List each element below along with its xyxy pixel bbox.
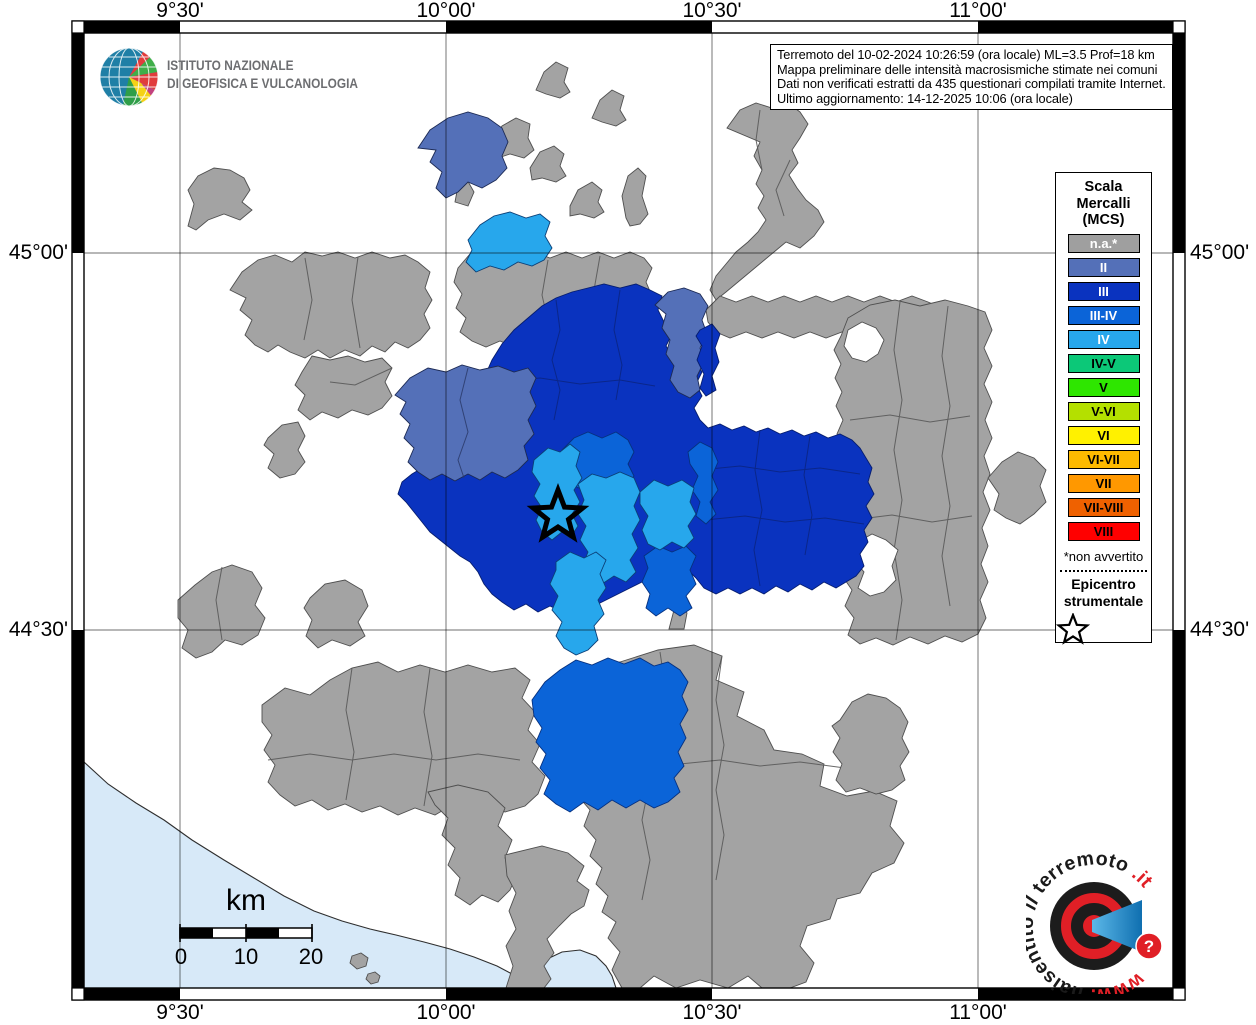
logo-text-il: il xyxy=(1026,893,1044,912)
legend-item-na: n.a.* xyxy=(1068,234,1140,253)
legend-item-ivv: IV-V xyxy=(1068,354,1140,373)
axis-tick-top-4: 11°00' xyxy=(949,0,1007,23)
axis-tick-top-3: 10°30' xyxy=(682,0,741,23)
axis-tick-bottom-1: 9°30' xyxy=(156,1001,203,1025)
axis-tick-left-1: 45°00' xyxy=(2,241,68,265)
axis-tick-top-1: 9°30' xyxy=(156,0,203,23)
legend-panel: Scala Mercalli (MCS) n.a.*IIIIIIII-IVIVI… xyxy=(1055,172,1152,643)
scale-bar-unit: km xyxy=(226,884,266,918)
axis-tick-bottom-4: 11°00' xyxy=(949,1001,1007,1025)
logo-question-mark: ? xyxy=(1144,937,1154,956)
legend-epicenter-line1: Epicentro xyxy=(1056,576,1151,593)
info-line-questionnaires: Dati non verificati estratti da 435 ques… xyxy=(777,77,1166,92)
intensity-iii-sliver xyxy=(696,324,720,396)
scale-bar-tick-20: 20 xyxy=(299,944,323,970)
logo-text-it: .it xyxy=(1128,863,1157,893)
info-line-event: Terremoto del 10-02-2024 10:26:59 (ora l… xyxy=(777,48,1166,63)
legend-item-iii: III xyxy=(1068,282,1140,301)
ingv-name-line1: ISTITUTO NAZIONALE xyxy=(167,57,358,75)
scale-bar-tick-10: 10 xyxy=(234,944,258,970)
legend-item-vii: VII xyxy=(1068,474,1140,493)
ingv-logo-text: ISTITUTO NAZIONALE DI GEOFISICA E VULCAN… xyxy=(167,57,358,92)
legend-title-line1: Scala xyxy=(1056,179,1151,196)
legend-divider xyxy=(1060,570,1147,572)
legend-items: n.a.*IIIIIIII-IVIVIV-VVV-VIVIVI-VIIVIIVI… xyxy=(1056,234,1151,541)
legend-title-line2: Mercalli xyxy=(1056,196,1151,213)
macroseismic-map-page: 9°30' 10°00' 10°30' 11°00' 9°30' 10°00' … xyxy=(0,0,1256,1024)
legend-item-vi: VI xyxy=(1068,426,1140,445)
legend-footnote: *non avvertito xyxy=(1056,549,1151,564)
legend-item-vivii: VI-VII xyxy=(1068,450,1140,469)
ingv-name-line2: DI GEOFISICA E VULCANOLOGIA xyxy=(167,75,358,93)
logo-text-www: www. xyxy=(1090,968,1150,994)
legend-epicenter-line2: strumentale xyxy=(1056,593,1151,610)
event-info-box: Terremoto del 10-02-2024 10:26:59 (ora l… xyxy=(770,44,1173,110)
legend-item-iv: IV xyxy=(1068,330,1140,349)
axis-tick-right-1: 45°00' xyxy=(1190,241,1249,265)
legend-item-v: V xyxy=(1068,378,1140,397)
legend-epicenter-star-icon xyxy=(1056,613,1090,647)
axis-tick-right-2: 44°30' xyxy=(1190,618,1249,642)
legend-title-line3: (MCS) xyxy=(1056,212,1151,229)
legend-title: Scala Mercalli (MCS) xyxy=(1056,179,1151,229)
scale-bar-tick-0: 0 xyxy=(175,944,187,970)
legend-item-viiviii: VII-VIII xyxy=(1068,498,1140,517)
axis-tick-bottom-2: 10°00' xyxy=(416,1001,475,1025)
axis-tick-bottom-3: 10°30' xyxy=(682,1001,741,1025)
axis-tick-top-2: 10°00' xyxy=(416,0,475,23)
info-line-map-desc: Mappa preliminare delle intensità macros… xyxy=(777,63,1166,78)
legend-item-vvi: V-VI xyxy=(1068,402,1140,421)
ingv-logo-globe xyxy=(100,48,158,106)
legend-item-viii: VIII xyxy=(1068,522,1140,541)
info-line-updated: Ultimo aggiornamento: 14-12-2025 10:06 (… xyxy=(777,92,1166,107)
haisentitoilterremoto-logo: ? www. haisentito il terremoto .it xyxy=(1026,850,1168,994)
legend-item-ii: II xyxy=(1068,258,1140,277)
legend-epicenter-title: Epicentro strumentale xyxy=(1056,576,1151,610)
legend-item-iiiiv: III-IV xyxy=(1068,306,1140,325)
axis-tick-left-2: 44°30' xyxy=(2,618,68,642)
